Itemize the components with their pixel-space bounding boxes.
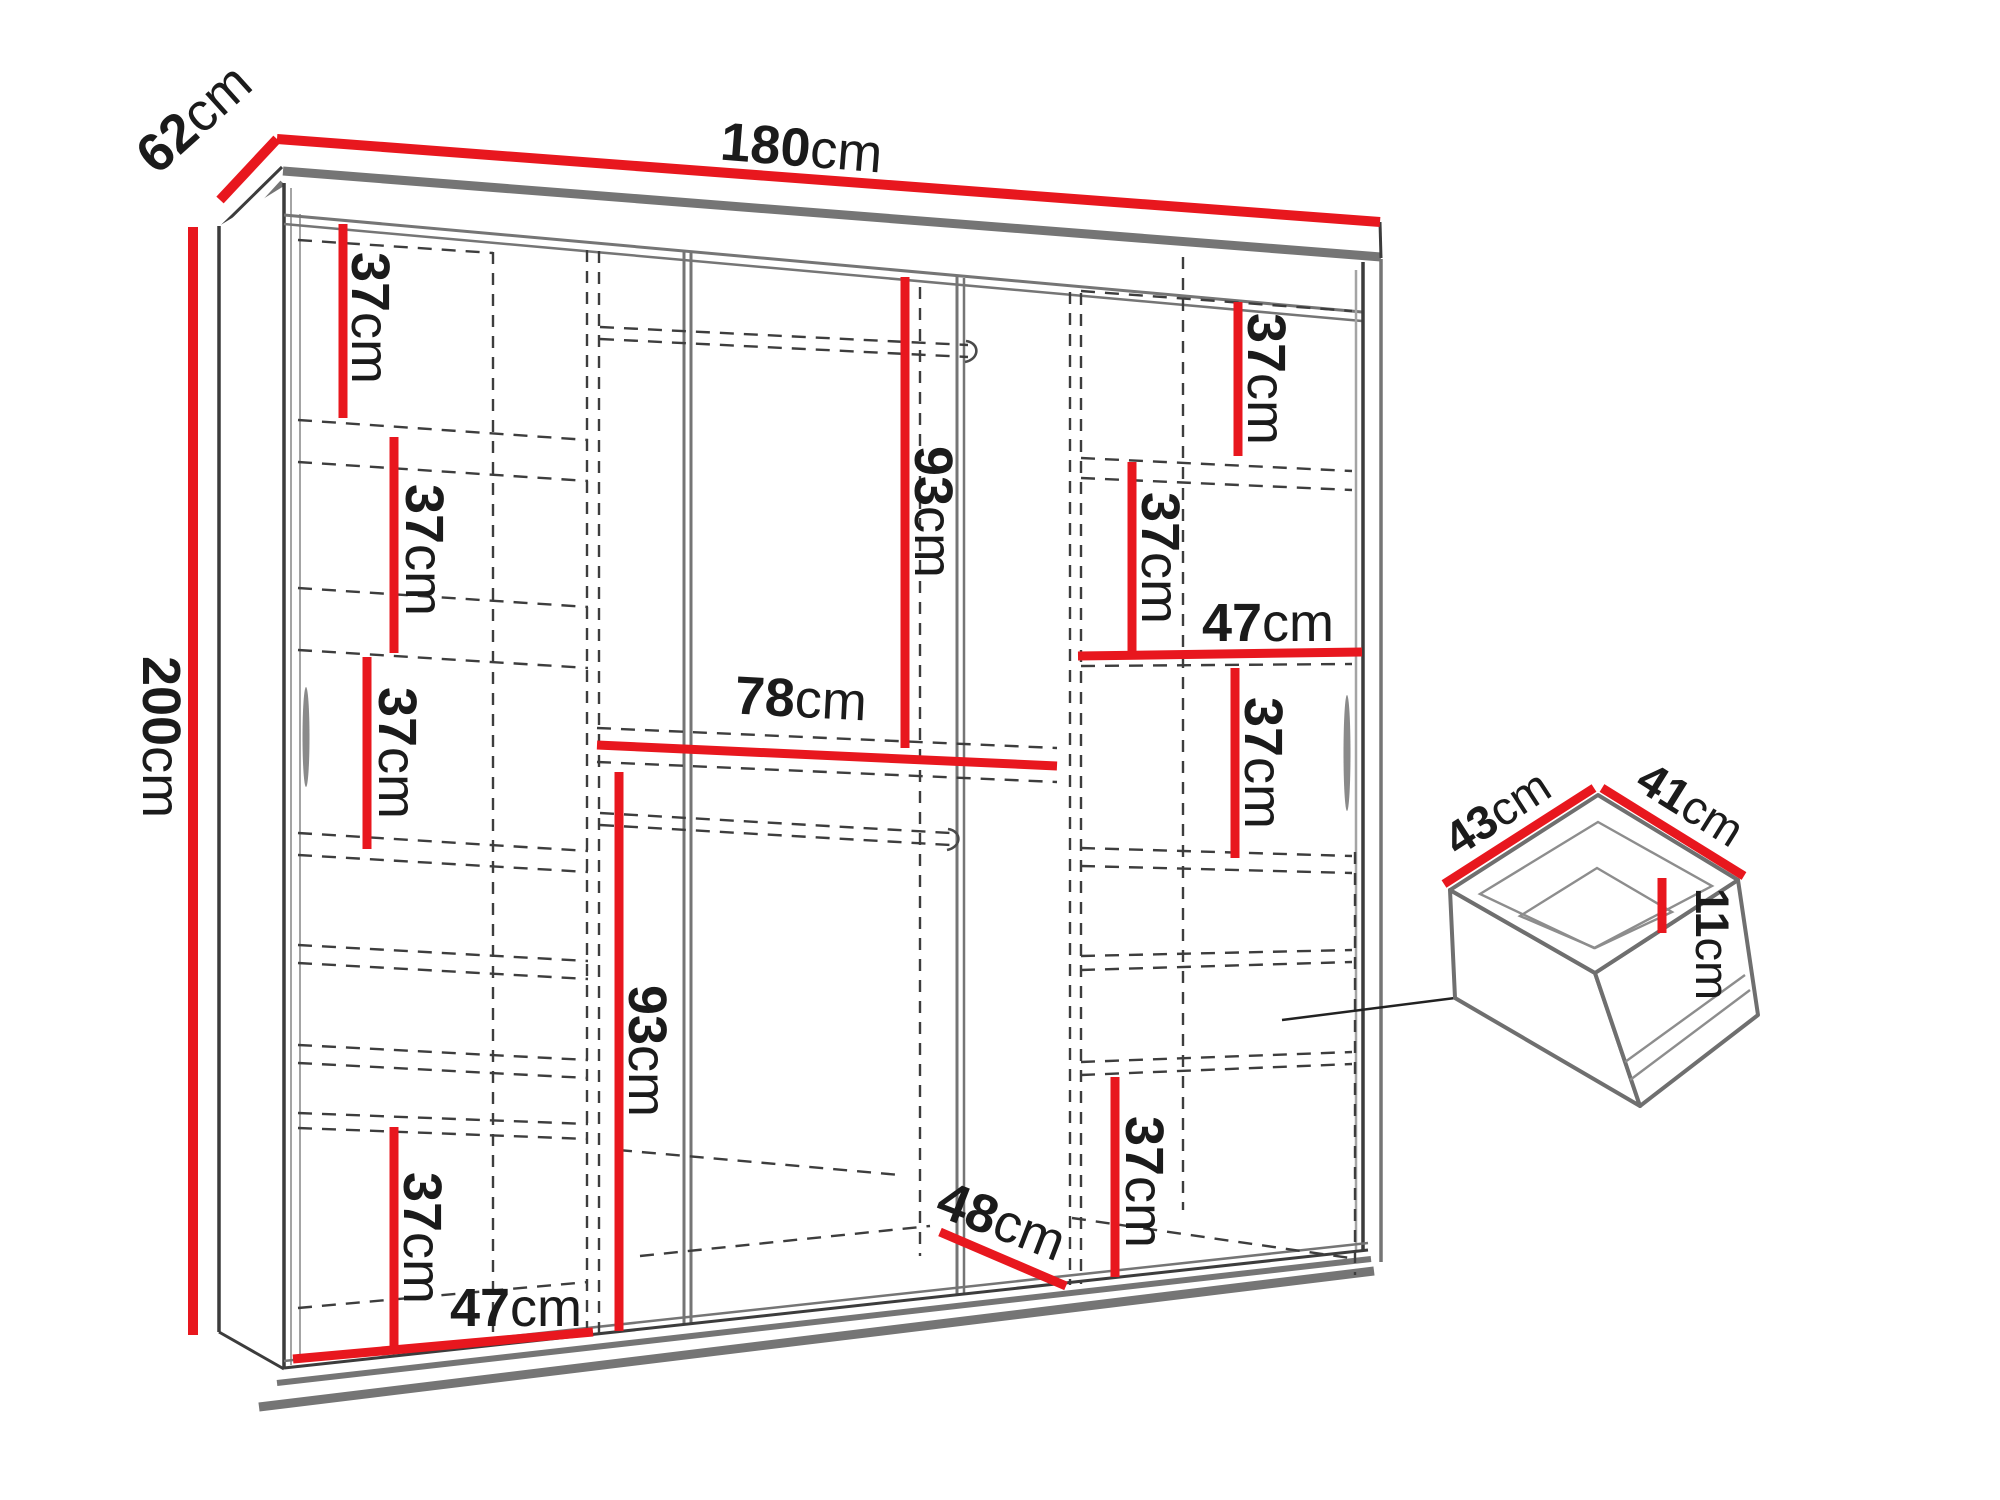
left-side-panel: [219, 186, 284, 1368]
dim-label-left-47: 47cm: [450, 1278, 582, 1338]
right-door-handle: [1344, 695, 1351, 811]
dim-label-left-37-2: 37cm: [394, 484, 454, 616]
dim-label-right-47: 47cm: [1202, 593, 1334, 653]
diagram-canvas: 180cm 62cm 200cm 37cm 37cm 37cm 37cm 47c…: [0, 0, 2000, 1500]
dim-line-depth-62: [220, 139, 277, 200]
dim-label-mid-78: 78cm: [733, 666, 868, 733]
left-door-handle: [303, 687, 310, 787]
dim-label-depth-62: 62cm: [125, 52, 263, 185]
dim-label-right-37-4: 37cm: [1114, 1116, 1174, 1248]
dim-label-right-37-3: 37cm: [1233, 697, 1293, 829]
dim-label-mid-93-bottom: 93cm: [617, 985, 677, 1117]
top-panel-right-end: [1380, 222, 1381, 258]
dim-label-left-37-4: 37cm: [392, 1172, 452, 1304]
dim-label-mid-93-top: 93cm: [903, 446, 963, 578]
dim-label-right-37-2: 37cm: [1130, 492, 1190, 624]
dim-label-height-200: 200cm: [131, 656, 191, 818]
dim-label-left-37-3: 37cm: [367, 687, 427, 819]
dim-label-left-37-1: 37cm: [340, 252, 400, 384]
dim-label-right-37-1: 37cm: [1236, 313, 1296, 445]
dim-label-drawer-11: 11cm: [1686, 888, 1739, 1000]
